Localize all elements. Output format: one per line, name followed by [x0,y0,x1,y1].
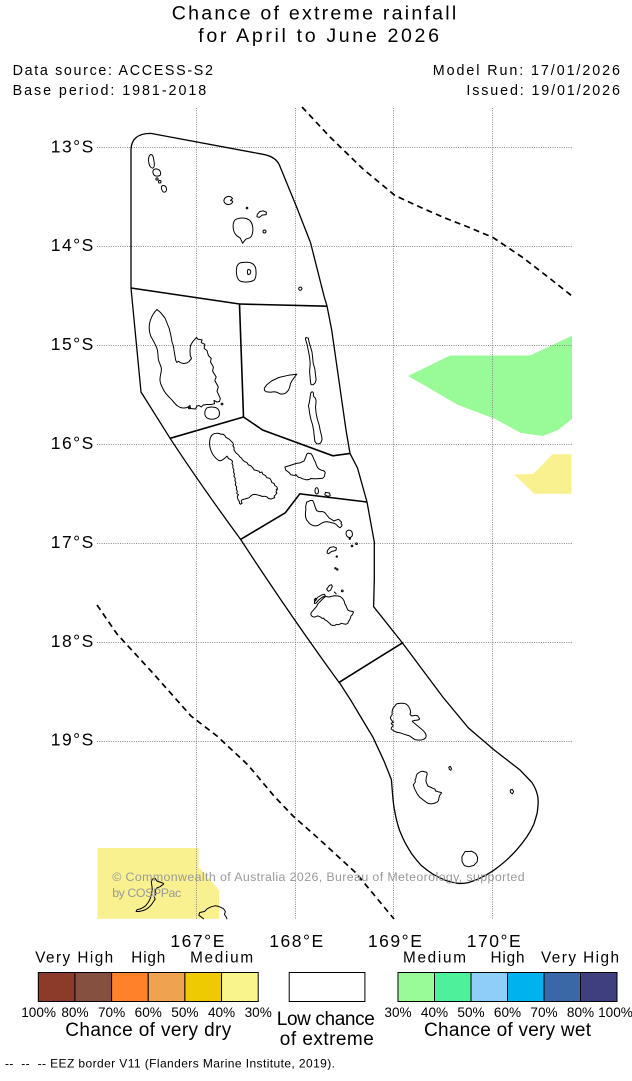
svg-text:30%: 30% [245,1005,272,1020]
svg-text:Very High: Very High [35,949,113,966]
svg-text:168°E: 168°E [269,931,323,951]
svg-text:Model Run: 17/01/2026: Model Run: 17/01/2026 [433,63,620,79]
svg-text:Data source: ACCESS-S2: Data source: ACCESS-S2 [13,63,213,79]
svg-text:50%: 50% [457,1005,484,1020]
svg-text:70%: 70% [98,1005,125,1020]
svg-text:High: High [491,949,525,966]
svg-text:-- -- -- EEZ border V11 (Fla: -- -- -- EEZ border V11 (Flanders Marine… [5,1057,335,1071]
svg-text:170°E: 170°E [467,931,521,951]
svg-text:100%: 100% [598,1005,632,1020]
svg-text:Medium: Medium [190,949,253,966]
svg-text:60%: 60% [135,1005,162,1020]
svg-text:40%: 40% [421,1005,448,1020]
svg-text:by COSPPac: by COSPPac [112,886,181,900]
svg-text:Low chance: Low chance [277,1009,375,1030]
svg-text:169°E: 169°E [368,931,422,951]
svg-text:Chance of very dry: Chance of very dry [65,1020,232,1041]
svg-text:© Commonwealth of Australia 20: © Commonwealth of Australia 2026, Bureau… [112,870,524,884]
svg-text:30%: 30% [384,1005,411,1020]
svg-text:40%: 40% [208,1005,235,1020]
svg-text:High: High [131,949,165,966]
svg-text:Chance of very wet: Chance of very wet [424,1020,592,1041]
svg-text:Very High: Very High [541,949,619,966]
svg-text:80%: 80% [61,1005,88,1020]
svg-text:Medium: Medium [403,949,466,966]
svg-text:60%: 60% [494,1005,521,1020]
svg-text:100%: 100% [21,1005,56,1020]
svg-text:167°E: 167°E [170,931,224,951]
svg-text:70%: 70% [530,1005,557,1020]
svg-text:50%: 50% [171,1005,198,1020]
svg-text:Chance of extreme rainfall: Chance of extreme rainfall [172,2,456,24]
svg-text:Issued: 19/01/2026: Issued: 19/01/2026 [466,83,620,99]
svg-text:of extreme: of extreme [280,1029,374,1050]
svg-text:80%: 80% [567,1005,594,1020]
